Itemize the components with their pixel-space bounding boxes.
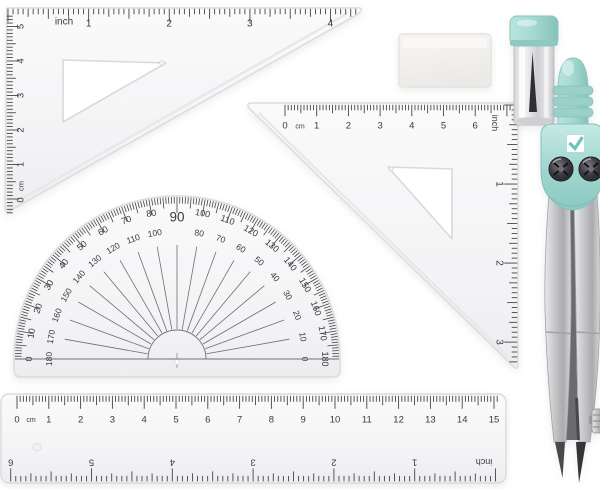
set-square-large-cm-unit: cm	[17, 181, 26, 191]
degree-label-outer: 90	[169, 210, 184, 225]
ruler-inch-unit: inch	[476, 457, 493, 467]
lead-tube-glass-highlight-2	[544, 46, 548, 118]
ruler-cm-origin: 0	[14, 415, 19, 426]
inch-scale-label: 3	[494, 339, 505, 345]
compass-lead-point	[576, 442, 586, 483]
cm-scale-label: 4	[16, 58, 27, 63]
eraser-highlight	[403, 38, 487, 48]
inch-scale-label: 1	[494, 181, 505, 187]
protractor: 0102030405060708090100110120130140150160…	[14, 196, 340, 377]
cm-scale-label: 8	[269, 415, 274, 426]
lead-tube-cap-highlight	[517, 20, 537, 27]
lead-tube-base	[516, 117, 552, 125]
cm-scale-label: 13	[425, 415, 436, 426]
eraser	[399, 34, 491, 87]
cm-scale-label: 3	[377, 121, 382, 132]
compass-lead-sliver	[577, 398, 579, 440]
set-square-small-inch-unit: inch	[490, 115, 500, 132]
cm-scale-label: 10	[330, 415, 341, 426]
cm-scale-label: 1	[46, 415, 51, 426]
scene-canvas: 123412345 inch cm 0 123456123 0 cm inch …	[0, 0, 600, 489]
compass-grip-ridge	[553, 108, 593, 117]
compass-left-leg	[545, 194, 571, 442]
set-square-large-cm-origin: 0	[16, 197, 27, 202]
cm-scale-label: 1	[314, 121, 319, 132]
compass-grip-highlight	[562, 60, 574, 76]
inch-scale-label: 3	[247, 19, 253, 30]
cm-scale-label: 5	[16, 24, 27, 29]
protractor-center-hole	[175, 360, 180, 365]
cm-scale-label: 5	[173, 415, 178, 426]
cm-scale-label: 5	[441, 121, 446, 132]
ruler: 123456789101112131415123456 0 cm inch	[1, 394, 506, 483]
compass-grip-ridge	[553, 97, 593, 106]
degree-label-inner: 10	[297, 331, 309, 342]
cm-scale-label: 3	[16, 93, 27, 98]
inch-scale-label: 3	[250, 457, 255, 468]
lead-refill-tube	[510, 16, 558, 125]
inch-scale-label: 5	[89, 457, 94, 468]
degree-label-outer: 80	[146, 207, 158, 219]
inch-scale-label: 4	[328, 19, 334, 30]
cm-scale-label: 12	[393, 415, 404, 426]
compass-grip-ridge	[553, 86, 593, 95]
ruler-cm-unit: cm	[26, 417, 36, 424]
inch-scale-label: 2	[494, 260, 505, 266]
inch-scale-label: 2	[166, 19, 172, 30]
lead-tube-glass-highlight	[519, 46, 525, 118]
set-square-large-inch-unit: inch	[55, 17, 73, 28]
degree-label-outer: 10	[25, 328, 37, 340]
cm-scale-label: 7	[237, 415, 242, 426]
geometry-set-photo: 123412345 inch cm 0 123456123 0 cm inch …	[0, 0, 600, 489]
cm-scale-label: 1	[16, 162, 27, 167]
cm-scale-label: 6	[205, 415, 210, 426]
inch-scale-label: 1	[412, 457, 417, 468]
cm-scale-label: 3	[110, 415, 115, 426]
degree-label-inner: 80	[194, 227, 205, 239]
cm-scale-label: 2	[346, 121, 351, 132]
cm-scale-label: 4	[409, 121, 414, 132]
compass-screw-left	[549, 157, 573, 181]
compass-needle-point	[555, 442, 565, 478]
cm-scale-label: 9	[301, 415, 306, 426]
cm-scale-label: 4	[142, 415, 147, 426]
inch-scale-label: 1	[86, 19, 92, 30]
cm-scale-label: 6	[473, 121, 478, 132]
compass-screw-right	[579, 157, 600, 181]
inch-scale-label: 4	[170, 457, 175, 468]
ruler-hang-hole	[33, 443, 41, 451]
cm-scale-label: 2	[78, 415, 83, 426]
set-square-small-cm-origin: 0	[282, 121, 287, 132]
lead-tube-cap-rim	[510, 40, 558, 46]
cm-scale-label: 14	[457, 415, 468, 426]
cm-scale-label: 15	[489, 415, 500, 426]
cm-scale-label: 11	[362, 415, 372, 426]
set-square-small-hole	[389, 167, 393, 171]
cm-scale-label: 2	[16, 127, 27, 132]
inch-scale-label: 2	[331, 457, 336, 468]
inch-scale-label: 6	[8, 457, 13, 468]
set-square-large-hole	[160, 61, 165, 66]
set-square-small-cm-unit: cm	[295, 124, 305, 131]
